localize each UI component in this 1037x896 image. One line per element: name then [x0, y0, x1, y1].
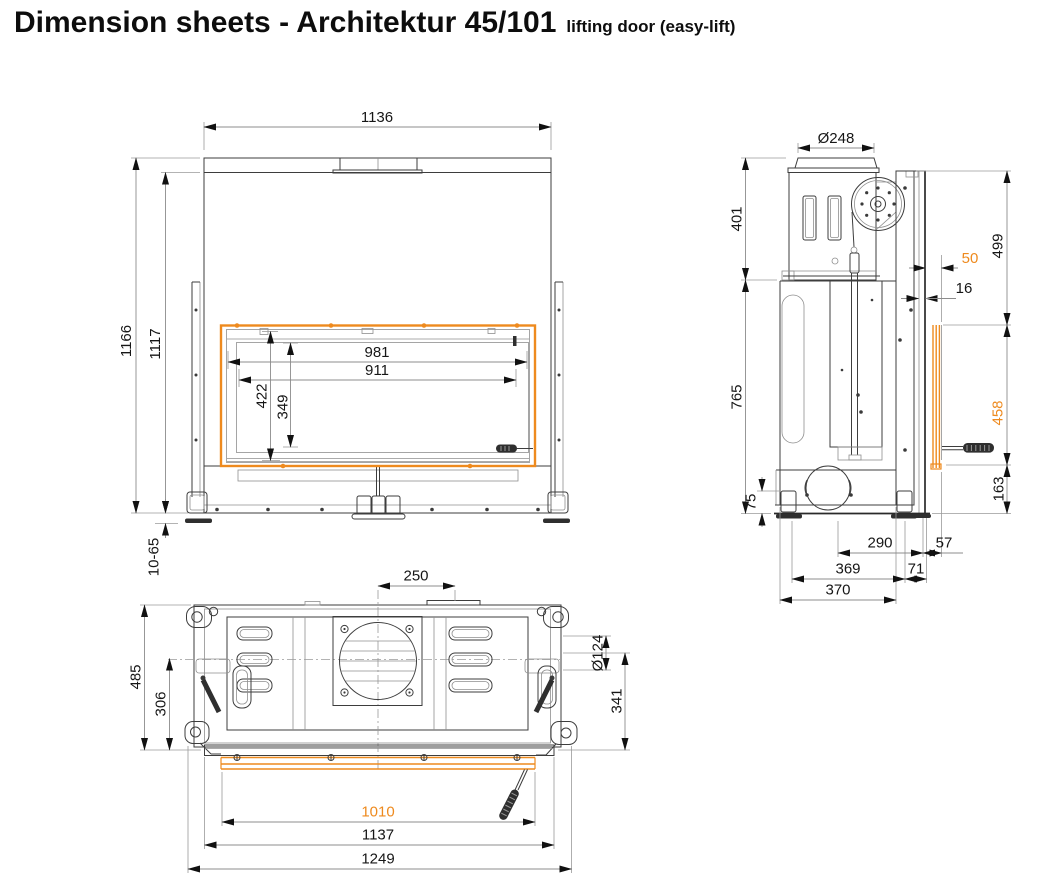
dim-top-flue-offset: 250 [403, 568, 428, 585]
dim-side-depth-fan-to-rail: 290 [867, 535, 892, 552]
side-door-handle [942, 443, 994, 453]
dimension-drawing: 1136 1166 1117 10-65 [0, 0, 1037, 896]
dim-top-latch-depth: 306 [153, 691, 170, 716]
side-dim-rail-thickness: 16 [901, 280, 972, 299]
top-view: 250 485 306 Ø124 341 [128, 568, 631, 874]
side-flue-collar [795, 158, 877, 168]
dim-front-total-height: 1166 [118, 325, 135, 357]
dim-side-flue-diameter: Ø248 [818, 130, 855, 147]
front-dim-overall-width: 1136 [204, 109, 551, 150]
front-dim-glass-width: 911 [239, 362, 516, 387]
dim-side-upper-height: 401 [729, 206, 746, 231]
front-door-handle [496, 445, 533, 453]
dim-front-opening-height: 422 [254, 383, 271, 408]
dim-side-depth-between-feet: 369 [835, 561, 860, 578]
side-door-rail [896, 171, 926, 514]
front-dim-glass-height: 349 [275, 343, 299, 447]
side-view: Ø248 401 765 75 [729, 130, 1012, 604]
top-dim-overall-depth: 485 [128, 605, 202, 750]
dim-top-overall-width: 1249 [361, 851, 394, 868]
side-dim-base-height: 163 [932, 465, 1011, 514]
side-dim-foot-height: 75 [743, 477, 780, 527]
side-lift-cable [849, 212, 861, 460]
side-dim-flue-diameter: Ø248 [798, 130, 874, 153]
top-body [168, 590, 577, 821]
dim-side-foot-height: 75 [743, 494, 760, 511]
dim-top-port-center-depth: 341 [609, 688, 626, 713]
dim-side-door-frame-height: 499 [990, 233, 1007, 258]
dim-side-glass-height: 458 [990, 400, 1007, 425]
side-body [774, 158, 994, 519]
side-door-glass [931, 325, 942, 469]
dim-top-overall-depth: 485 [128, 664, 145, 689]
top-dim-latch-depth: 306 [153, 659, 170, 751]
side-dim-upper-height: 401 [729, 158, 787, 280]
dim-side-rail-thickness: 16 [956, 280, 973, 297]
top-dim-glass-width: 1010 [222, 772, 535, 826]
side-dim-door-frame-height: 499 [916, 171, 1011, 325]
dim-top-glass-width: 1010 [361, 804, 394, 821]
dim-side-depth-rail-to-glass: 57 [936, 535, 953, 552]
front-body [185, 158, 570, 523]
side-base [774, 466, 931, 519]
front-foot-right [543, 492, 570, 523]
side-dims-depth: 290 57 369 71 370 [780, 472, 963, 604]
dim-side-base-height: 163 [991, 476, 1008, 501]
dim-front-glass-height: 349 [275, 394, 292, 419]
front-side-rails [192, 282, 563, 497]
top-dim-flue-offset: 250 [378, 568, 455, 602]
dim-front-body-height: 1117 [147, 328, 164, 359]
side-easylift-pulley [852, 178, 905, 231]
top-door-handle [498, 770, 528, 822]
front-foot-left [185, 492, 212, 523]
front-dim-foot-adjustment: 10-65 [146, 499, 179, 576]
top-latch-right [525, 659, 559, 712]
front-flue-collar [333, 158, 422, 173]
dim-front-opening-width: 981 [364, 344, 389, 361]
dim-front-foot-adjustment: 10-65 [146, 538, 163, 576]
dim-front-overall-width: 1136 [361, 109, 393, 126]
dim-front-glass-width: 911 [365, 362, 389, 379]
front-view: 1136 1166 1117 10-65 [118, 109, 570, 576]
dim-side-rail-depth: 71 [908, 561, 925, 578]
dimension-sheet-page: Dimension sheets - Architektur 45/101 li… [0, 0, 1037, 896]
dim-side-overall-depth: 370 [825, 582, 850, 599]
side-dim-lower-height: 765 [729, 280, 772, 514]
dim-top-door-width: 1137 [362, 827, 394, 844]
dim-side-lower-height: 765 [729, 384, 746, 409]
front-base [215, 466, 540, 519]
dim-side-front-offset: 50 [962, 250, 979, 267]
top-fan-plate [333, 617, 422, 706]
